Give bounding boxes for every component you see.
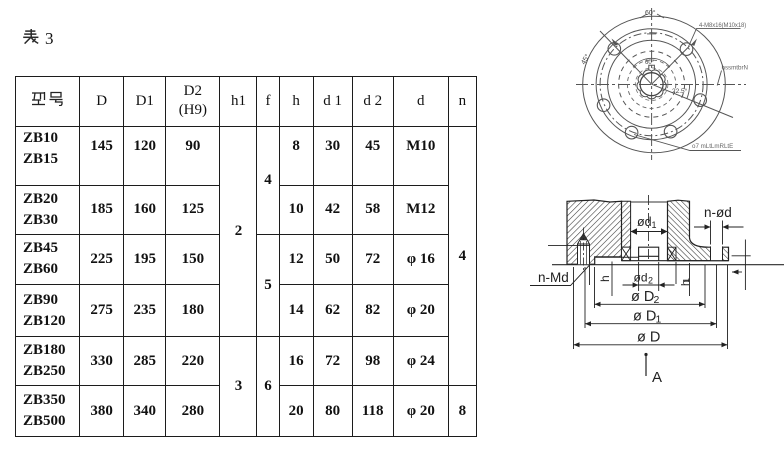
svg-text:hssmtbrN: hssmtbrN: [722, 65, 748, 72]
svg-text:A: A: [652, 369, 662, 386]
svg-text:n-Md: n-Md: [538, 270, 569, 285]
svg-text:1: 1: [656, 314, 662, 326]
svg-text:ø D: ø D: [637, 330, 660, 346]
svg-text:2: 2: [654, 294, 660, 306]
svg-text:o7 mLtLmRLtE: o7 mLtLmRLtE: [692, 143, 733, 150]
svg-text:3: 3: [45, 29, 54, 47]
svg-text:ø D: ø D: [631, 289, 654, 305]
svg-text:4-M8x16(M10x18): 4-M8x16(M10x18): [699, 23, 746, 29]
svg-text:1: 1: [682, 278, 691, 283]
svg-text:60°: 60°: [645, 9, 656, 17]
svg-text:n-ød: n-ød: [704, 205, 732, 220]
svg-text:1: 1: [652, 220, 657, 230]
svg-text:h: h: [598, 275, 612, 282]
svg-text:ød: ød: [637, 215, 652, 229]
svg-text:2: 2: [648, 276, 653, 286]
svg-text:ød: ød: [634, 271, 648, 285]
svg-text:22.5°: 22.5°: [672, 87, 688, 95]
svg-text:ø D: ø D: [633, 309, 656, 325]
